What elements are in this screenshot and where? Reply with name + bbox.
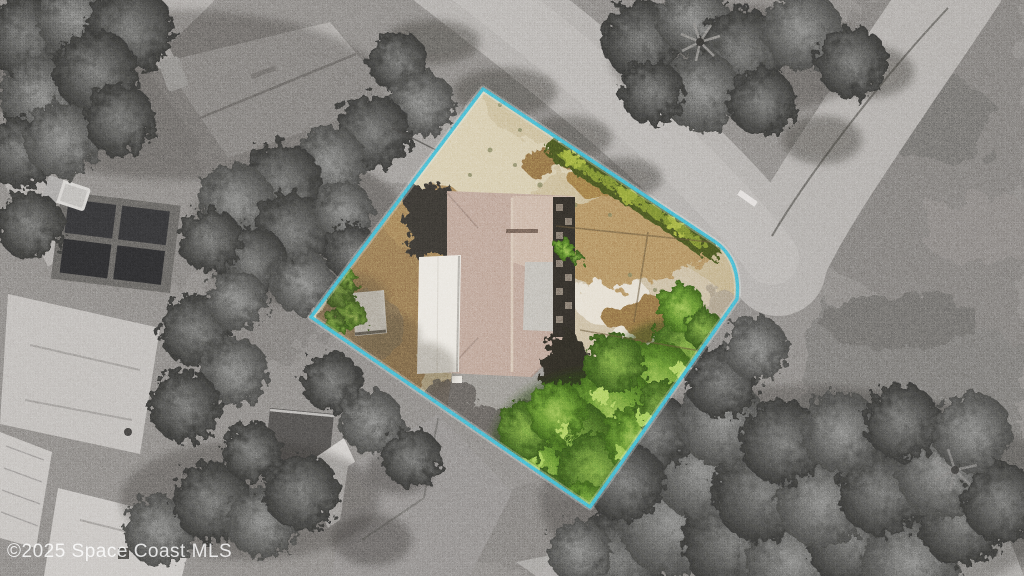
aerial-photo: ©2025 Space Coast MLS xyxy=(0,0,1024,576)
watermark-text: ©2025 Space Coast MLS xyxy=(7,541,232,562)
aerial-photo-stage: ©2025 Space Coast MLS xyxy=(0,0,1024,576)
photo-grain-overlay xyxy=(0,0,1024,576)
